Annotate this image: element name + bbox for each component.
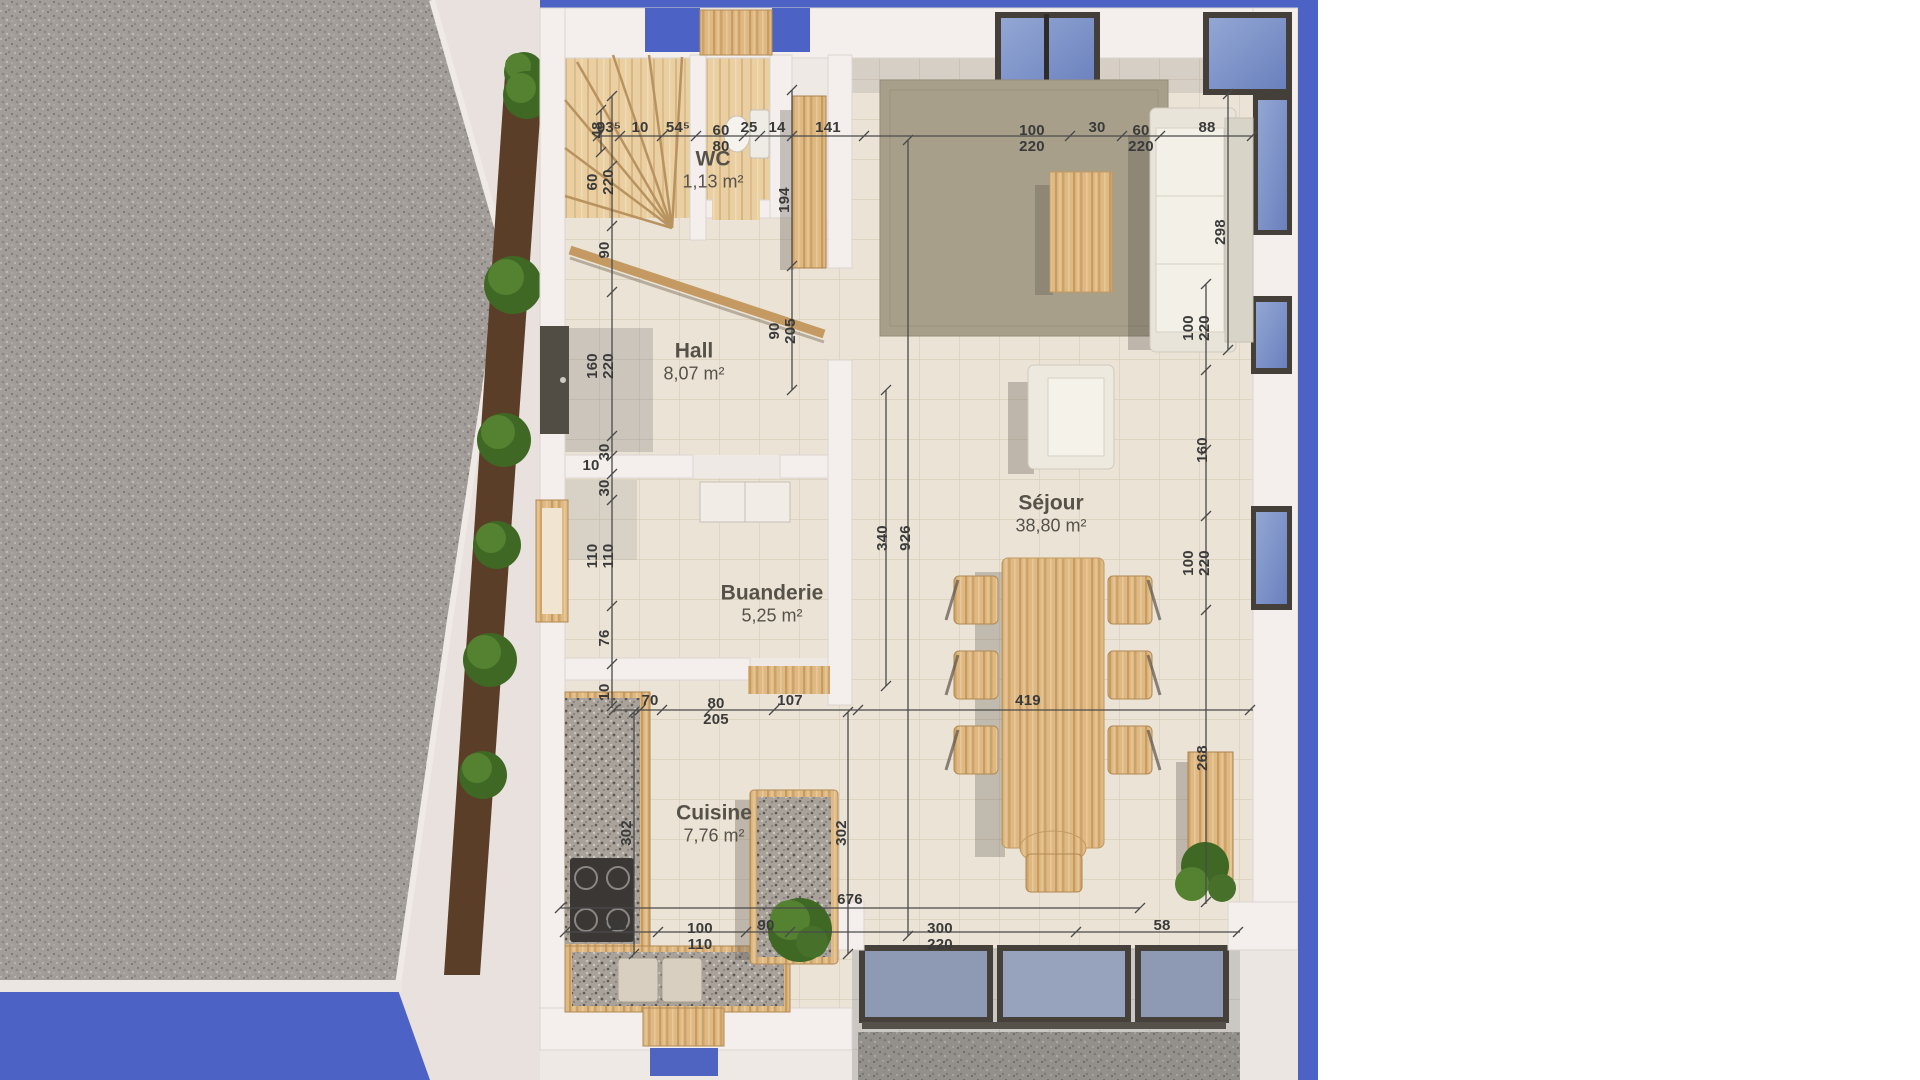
window-glass bbox=[1256, 302, 1287, 368]
sky-recess-left bbox=[645, 8, 700, 52]
wall-central-upper bbox=[828, 55, 852, 268]
buanderie-shadow bbox=[565, 480, 637, 560]
sink bbox=[662, 958, 702, 1002]
wall-hall-buanderie-a bbox=[565, 455, 693, 478]
terrace-gravel bbox=[858, 1032, 1240, 1080]
sofa-cushion bbox=[1156, 264, 1224, 332]
door-handle bbox=[560, 377, 566, 383]
kitchen-counter-left bbox=[565, 692, 650, 948]
floor-plan-drawing bbox=[0, 0, 1920, 1080]
kitchen-bottom-window bbox=[643, 1008, 724, 1076]
wall-buanderie-cuisine bbox=[565, 658, 750, 680]
wall-stair-wc bbox=[690, 55, 706, 240]
wc-threshold bbox=[712, 200, 760, 220]
curb-bottom bbox=[0, 980, 402, 992]
stairwell-floor bbox=[565, 55, 690, 240]
armchair-seat bbox=[1048, 378, 1104, 456]
potted-plant bbox=[1208, 874, 1236, 902]
rug bbox=[880, 80, 1168, 336]
wc-top-window bbox=[700, 10, 772, 55]
sofa bbox=[1128, 108, 1253, 352]
wall-central-lower bbox=[828, 360, 852, 705]
window-glass bbox=[1256, 512, 1287, 604]
wall-hall-buanderie-b bbox=[780, 455, 828, 478]
sink bbox=[618, 958, 658, 1002]
tall-cabinet bbox=[792, 96, 826, 268]
dining-table bbox=[1002, 558, 1104, 848]
terrain bbox=[0, 0, 551, 1080]
threshold-wood bbox=[748, 666, 830, 694]
entry-shadow bbox=[565, 328, 653, 452]
potted-plant bbox=[1175, 867, 1209, 901]
buanderie-window-sill bbox=[542, 508, 562, 614]
sofa-cushion bbox=[1156, 196, 1224, 264]
sliding-door bbox=[862, 948, 1226, 1029]
sofa-cushion bbox=[1156, 128, 1224, 196]
coffee-table bbox=[1050, 172, 1112, 292]
scene-right-edge bbox=[1298, 0, 1318, 1080]
sofa-back bbox=[1225, 118, 1253, 342]
wall-sejour-br bbox=[1228, 902, 1298, 950]
sky-recess-right bbox=[772, 8, 810, 52]
floor-plan-scene: WC1,13 m²Hall8,07 m²Buanderie5,25 m²Séjo… bbox=[0, 0, 1920, 1080]
door-opening-floor bbox=[828, 268, 852, 360]
